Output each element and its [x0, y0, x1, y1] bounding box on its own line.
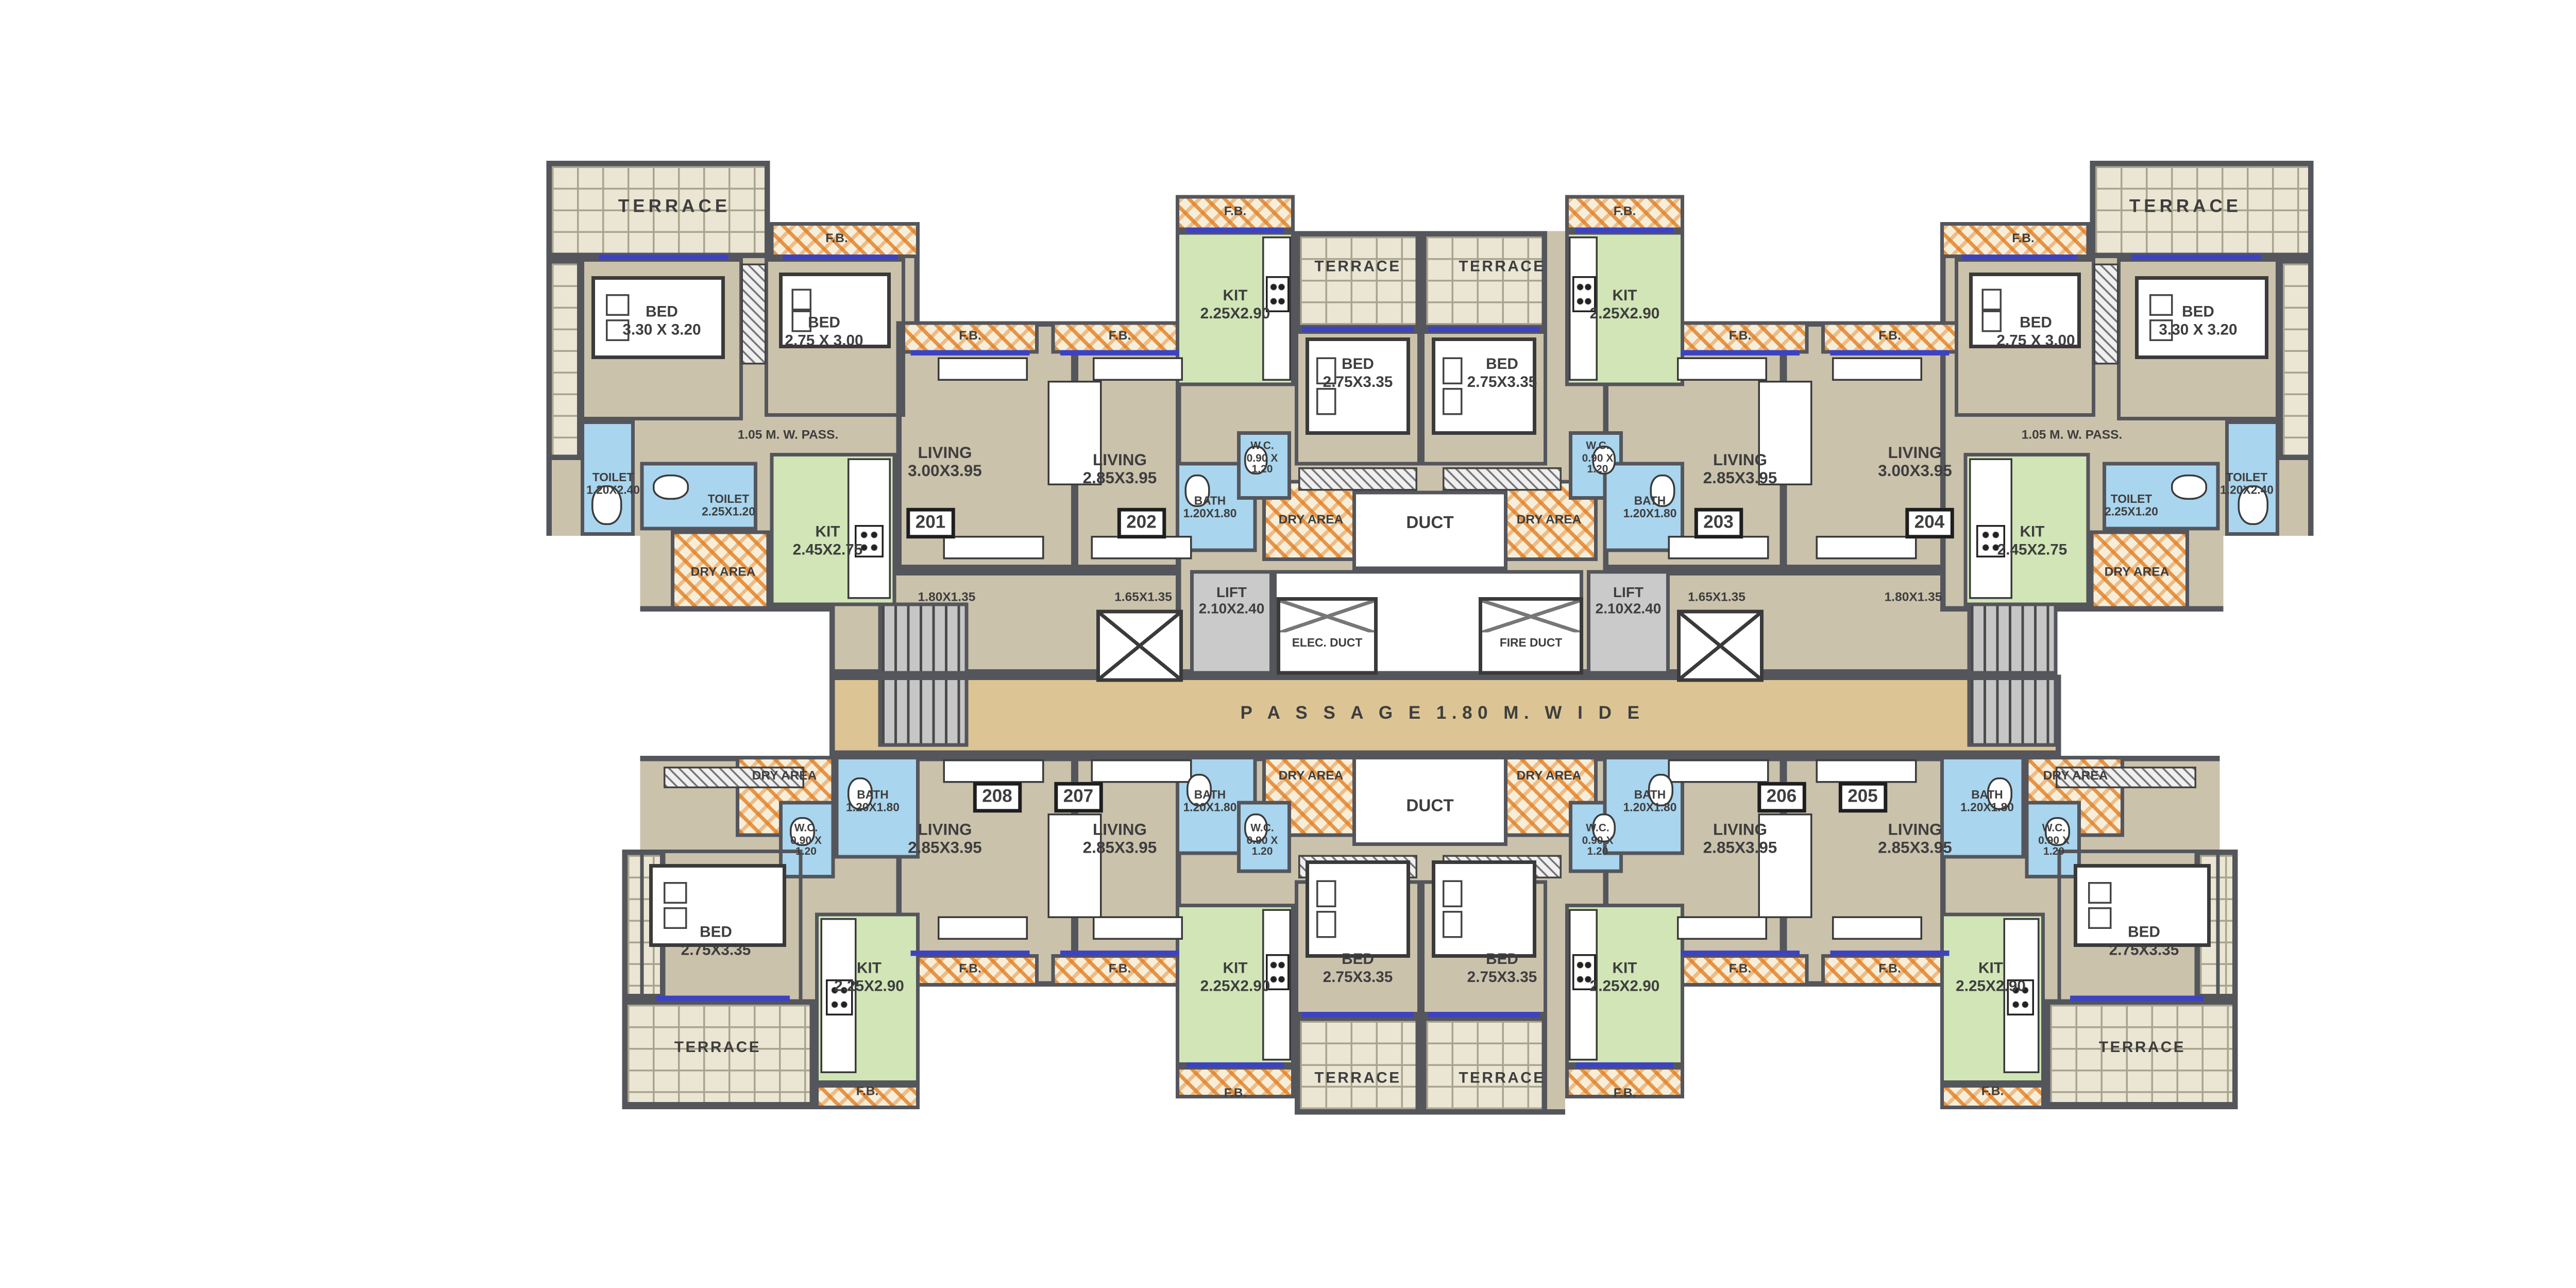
label-living: LIVING 3.00X3.95 — [908, 444, 982, 480]
label-fire-duct: FIRE DUCT — [1500, 637, 1562, 650]
window — [1681, 350, 1800, 356]
label-bed: BED 2.75 X 3.00 — [785, 315, 863, 349]
window — [1302, 1012, 1414, 1018]
label-terrace: TERRACE — [674, 1039, 761, 1056]
label-1-65x1-35: 1.65X1.35 — [1688, 592, 1745, 606]
terrace-top-right-strip — [2278, 258, 2314, 460]
label-bed: BED 2.75X3.35 — [2109, 924, 2179, 959]
label-toilet: TOILET 1.20X2.40 — [2220, 472, 2274, 499]
label-terrace: TERRACE — [1314, 1070, 1401, 1087]
label-terrace: TERRACE — [1459, 1070, 1545, 1087]
label-bath: BATH 1.20X1.80 — [1183, 496, 1237, 522]
label-living: LIVING 3.00X3.95 — [1878, 444, 1952, 480]
window — [1576, 1062, 1673, 1068]
window — [2131, 255, 2261, 260]
label-f-b: F.B. — [959, 963, 981, 977]
label-bed: BED 2.75X3.35 — [1467, 357, 1537, 391]
sofa — [1677, 917, 1767, 940]
staircase — [1968, 603, 2058, 747]
label-205: 205 — [1839, 782, 1887, 813]
label-terrace: TERRACE — [2129, 197, 2242, 217]
label-1-05-m-w-pass: 1.05 M. W. PASS. — [2022, 430, 2123, 444]
label-kit: KIT 2.25X2.90 — [1200, 960, 1270, 995]
label-kit: KIT 2.45X2.75 — [1997, 524, 2067, 558]
window — [1962, 255, 2077, 260]
dining-table — [1816, 759, 1917, 783]
label-lift: LIFT 2.10X2.40 — [1596, 586, 1662, 619]
label-1-05-m-w-pass: 1.05 M. W. PASS. — [738, 430, 839, 444]
label-bed: BED 2.75 X 3.00 — [1996, 315, 2075, 349]
dining-table — [943, 536, 1044, 560]
label-elec-duct: ELEC. DUCT — [1292, 637, 1363, 650]
label-bath: BATH 1.20X1.80 — [1623, 496, 1677, 522]
label-w-c: W.C. 0.90 X 1.20 — [790, 824, 822, 861]
label-kit: KIT 2.25X2.90 — [1956, 960, 2026, 995]
label-dry-area: DRY AREA — [1517, 514, 1582, 528]
label-dry-area: DRY AREA — [2043, 770, 2108, 784]
label-208: 208 — [973, 782, 1021, 813]
bed-icon — [1432, 860, 1536, 958]
label-202: 202 — [1117, 508, 1165, 539]
window — [911, 350, 1030, 356]
label-f-b: F.B. — [1109, 330, 1131, 344]
bed-icon — [1306, 860, 1410, 958]
label-terrace: TERRACE — [2099, 1039, 2185, 1056]
window — [1428, 327, 1540, 332]
window — [656, 996, 790, 1002]
window — [1187, 1062, 1284, 1068]
sofa — [1832, 358, 1922, 381]
label-kit: KIT 2.25X2.90 — [1590, 288, 1660, 323]
label-bed: BED 2.75X3.35 — [1467, 952, 1537, 986]
label-living: LIVING 2.85X3.95 — [908, 821, 982, 857]
void — [1940, 161, 2090, 222]
label-toilet: TOILET 2.25X1.20 — [2105, 494, 2158, 520]
label-duct: DUCT — [1406, 799, 1453, 818]
void — [2220, 756, 2238, 850]
terrace-center-bottom-left — [1295, 1015, 1421, 1115]
label-f-b: F.B. — [1224, 1088, 1247, 1101]
window — [1060, 350, 1179, 356]
label-207: 207 — [1054, 782, 1102, 813]
label-w-c: W.C. 0.90 X 1.20 — [1582, 824, 1614, 861]
label-f-b: F.B. — [1729, 963, 1752, 977]
label-p-a-s-s-a-g-e-1-80-m-w-i-d-e: P A S S A G E 1.80 M. W I D E — [1241, 704, 1645, 724]
label-bath: BATH 1.20X1.80 — [1623, 790, 1677, 816]
wardrobe — [1443, 467, 1562, 491]
floor-plan-viewport: TERRACETERRACEF.B.F.B.BED 3.30 X 3.20BED… — [0, 0, 2576, 1288]
sofa — [938, 917, 1028, 940]
label-1-80x1-35: 1.80X1.35 — [1885, 592, 1942, 606]
elec-duct — [1277, 597, 1378, 675]
void — [547, 536, 640, 612]
sofa — [1093, 917, 1183, 940]
window — [911, 951, 1030, 956]
window — [1831, 350, 1950, 356]
dining-table — [1668, 536, 1769, 560]
window — [1060, 951, 1179, 956]
terrace-top-left-strip — [547, 258, 583, 460]
window — [1681, 951, 1800, 956]
label-f-b: F.B. — [1109, 963, 1131, 977]
label-bed: BED 3.30 X 3.20 — [2159, 304, 2237, 338]
label-duct: DUCT — [1406, 515, 1453, 534]
wardrobe — [741, 264, 767, 365]
label-f-b: F.B. — [1729, 330, 1752, 344]
label-terrace: TERRACE — [1314, 259, 1401, 276]
label-dry-area: DRY AREA — [752, 770, 817, 784]
label-terrace: TERRACE — [1459, 259, 1545, 276]
label-dry-area: DRY AREA — [1279, 770, 1344, 784]
label-kit: KIT 2.45X2.75 — [793, 524, 863, 558]
label-f-b: F.B. — [1614, 206, 1636, 220]
label-toilet: TOILET 1.20X2.40 — [586, 472, 640, 499]
label-201: 201 — [906, 508, 954, 539]
label-bed: BED 2.75X3.35 — [1323, 952, 1393, 986]
dining-table — [1091, 536, 1192, 560]
label-living: LIVING 2.85X3.95 — [1878, 821, 1952, 857]
dining-table — [943, 759, 1044, 783]
toilet-icon — [2171, 474, 2207, 500]
label-w-c: W.C. 0.90 X 1.20 — [1247, 824, 1278, 861]
label-w-c: W.C. 0.90 X 1.20 — [1582, 442, 1614, 479]
label-dry-area: DRY AREA — [2105, 567, 2170, 581]
label-bath: BATH 1.20X1.80 — [846, 790, 900, 816]
label-f-b: F.B. — [856, 1086, 879, 1100]
label-w-c: W.C. 0.90 X 1.20 — [1247, 442, 1278, 479]
window — [599, 255, 728, 260]
window — [783, 255, 898, 260]
label-dry-area: DRY AREA — [1279, 514, 1344, 528]
label-f-b: F.B. — [825, 233, 848, 247]
fire-duct — [1479, 597, 1583, 675]
floor-plan-canvas: TERRACETERRACEF.B.F.B.BED 3.30 X 3.20BED… — [0, 2, 2576, 1288]
void — [622, 756, 640, 850]
window — [2070, 996, 2204, 1002]
label-f-b: F.B. — [1224, 206, 1247, 220]
label-bath: BATH 1.20X1.80 — [1183, 790, 1237, 816]
void — [770, 161, 920, 222]
label-w-c: W.C. 0.90 X 1.20 — [2038, 824, 2070, 861]
sofa — [1677, 358, 1767, 381]
label-dry-area: DRY AREA — [691, 567, 756, 581]
label-living: LIVING 2.85X3.95 — [1083, 821, 1157, 857]
void — [1295, 195, 1565, 231]
window — [1302, 327, 1414, 332]
label-living: LIVING 2.85X3.95 — [1703, 451, 1777, 487]
dining-table — [1816, 536, 1917, 560]
label-1-65x1-35: 1.65X1.35 — [1114, 592, 1172, 606]
label-lift: LIFT 2.10X2.40 — [1199, 586, 1265, 619]
label-kit: KIT 2.25X2.90 — [1200, 288, 1270, 323]
label-f-b: F.B. — [1614, 1088, 1636, 1101]
terrace-center-bottom-right — [1421, 1015, 1547, 1115]
sofa — [938, 358, 1028, 381]
label-bed: BED 2.75X3.35 — [681, 924, 751, 959]
label-terrace: TERRACE — [618, 197, 731, 217]
void — [2224, 536, 2317, 612]
staircase — [878, 603, 969, 747]
label-toilet: TOILET 2.25X1.20 — [702, 494, 755, 520]
label-kit: KIT 2.25X2.90 — [1590, 960, 1660, 995]
toilet-icon — [653, 474, 689, 500]
label-f-b: F.B. — [959, 330, 981, 344]
label-f-b: F.B. — [1878, 963, 1901, 977]
lift-shaft — [1677, 610, 1764, 682]
label-f-b: F.B. — [1981, 1086, 2004, 1100]
label-living: LIVING 2.85X3.95 — [1703, 821, 1777, 857]
label-204: 204 — [1905, 508, 1953, 539]
label-f-b: F.B. — [1878, 330, 1901, 344]
wardrobe — [1298, 467, 1417, 491]
label-living: LIVING 2.85X3.95 — [1083, 451, 1157, 487]
sofa — [1093, 358, 1183, 381]
label-bath: BATH 1.20X1.80 — [1960, 790, 2014, 816]
label-f-b: F.B. — [2012, 233, 2035, 247]
label-kit: KIT 2.25X2.90 — [834, 960, 904, 995]
window — [1428, 1012, 1540, 1018]
wardrobe — [2094, 264, 2119, 365]
dining-table — [1091, 759, 1192, 783]
dining-table — [1668, 759, 1769, 783]
terrace-center-top-left — [1295, 231, 1421, 331]
label-203: 203 — [1694, 508, 1742, 539]
terrace-center-top-right — [1421, 231, 1547, 331]
label-1-80x1-35: 1.80X1.35 — [918, 592, 976, 606]
window — [1831, 951, 1950, 956]
sofa — [1832, 917, 1922, 940]
label-dry-area: DRY AREA — [1517, 770, 1582, 784]
label-206: 206 — [1757, 782, 1805, 813]
label-bed: BED 3.30 X 3.20 — [622, 304, 701, 338]
window — [1576, 228, 1673, 233]
lift-shaft — [1096, 610, 1183, 682]
window — [1187, 228, 1284, 233]
label-bed: BED 2.75X3.35 — [1323, 357, 1393, 391]
